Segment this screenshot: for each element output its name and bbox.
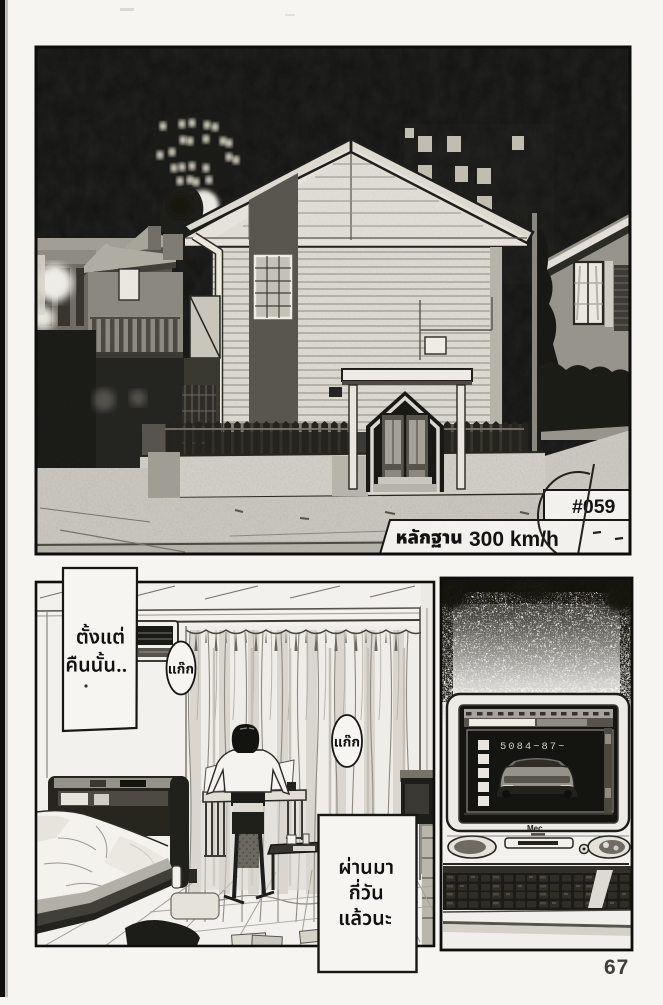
svg-text:5084~87~: 5084~87~: [500, 741, 566, 753]
svg-text:67: 67: [604, 956, 629, 979]
svg-text:Mec: Mec: [527, 824, 543, 833]
